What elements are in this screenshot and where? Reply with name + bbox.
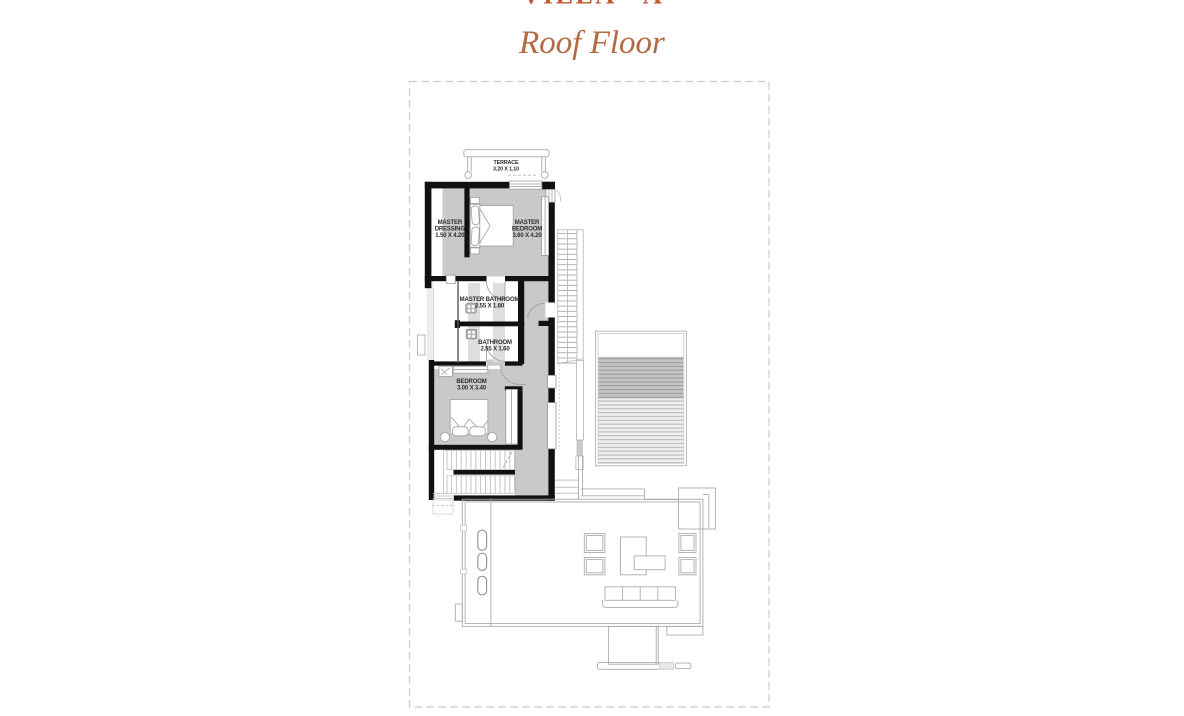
svg-text:3.20 X 1.10: 3.20 X 1.10 — [493, 167, 519, 173]
svg-text:MASTER: MASTER — [438, 220, 463, 226]
svg-text:2.55 X 1.80: 2.55 X 1.80 — [475, 304, 505, 310]
svg-text:VILLA - A: VILLA - A — [522, 0, 664, 10]
svg-text:2.55 X 1.60: 2.55 X 1.60 — [480, 347, 510, 353]
svg-text:TERRACE: TERRACE — [493, 160, 519, 166]
svg-text:BEDROOM: BEDROOM — [456, 379, 486, 385]
svg-text:BEDROOM: BEDROOM — [512, 227, 542, 233]
svg-text:MASTER: MASTER — [515, 220, 540, 226]
svg-text:3.60 X 4.20: 3.60 X 4.20 — [512, 233, 542, 239]
svg-text:3.00 X 3.40: 3.00 X 3.40 — [457, 386, 487, 392]
svg-text:MASTER BATHROOM: MASTER BATHROOM — [460, 297, 520, 303]
svg-text:DRESSING: DRESSING — [435, 227, 466, 233]
svg-text:1.50 X 4.20: 1.50 X 4.20 — [435, 233, 465, 239]
svg-text:BATHROOM: BATHROOM — [478, 340, 512, 346]
svg-text:Roof Floor: Roof Floor — [518, 25, 665, 61]
